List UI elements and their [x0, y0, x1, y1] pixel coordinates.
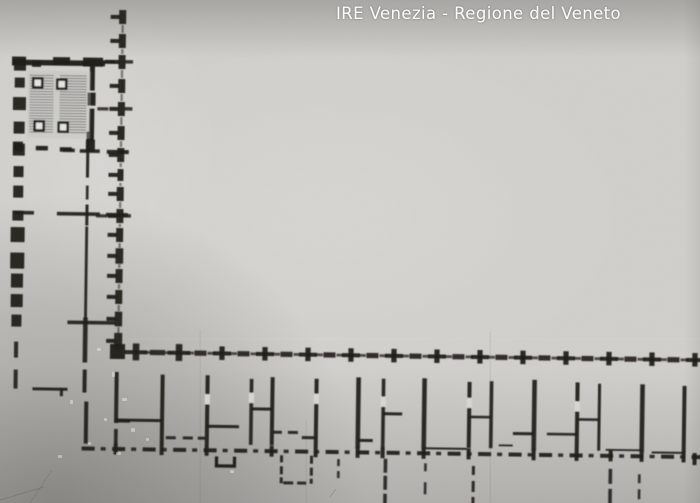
floor-plan-drawing [0, 0, 700, 503]
film-grain [0, 0, 700, 503]
photograph-of-floor-plan: IRE Venezia - Regione del Veneto [0, 0, 700, 503]
photo-caption: IRE Venezia - Regione del Veneto [336, 4, 621, 23]
